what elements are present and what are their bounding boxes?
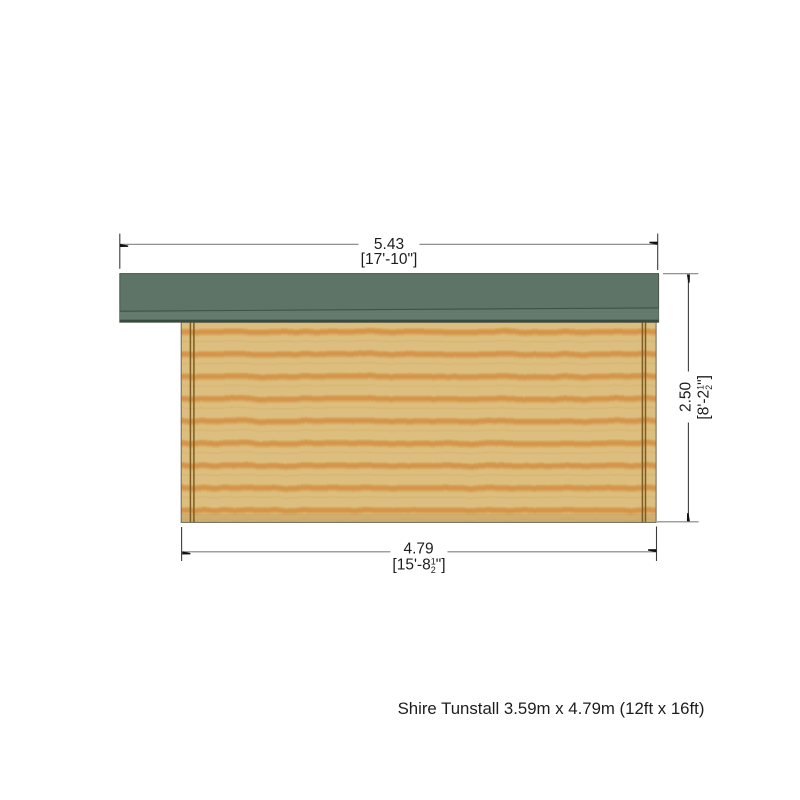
svg-text:Shire Tunstall 3.59m x 4.79m (: Shire Tunstall 3.59m x 4.79m (12ft x 16f…	[398, 699, 705, 718]
svg-text:4.79: 4.79	[404, 541, 434, 558]
svg-text:[8'-212"]: [8'-212"]	[696, 375, 715, 420]
svg-text:2.50: 2.50	[678, 381, 695, 412]
svg-text:[17'-10"]: [17'-10"]	[361, 251, 418, 268]
svg-text:[15'-812"]: [15'-812"]	[392, 557, 445, 576]
